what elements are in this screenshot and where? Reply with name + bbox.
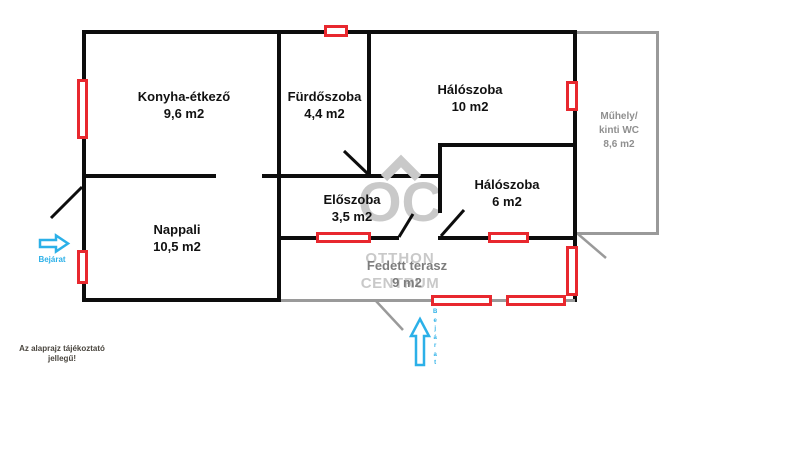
entrance-arrow-left-icon: [40, 236, 68, 252]
room-label-kitchen: Konyha-étkező 9,6 m2: [110, 88, 258, 122]
room-area: 8,6 m2: [589, 138, 649, 152]
room-name: Műhely/: [589, 110, 649, 124]
entrance-label-bottom: B e j á r a t: [433, 308, 437, 368]
room-name: Hálószoba: [425, 81, 515, 98]
disclaimer-line: jellegű!: [18, 354, 106, 364]
room-name: Hálószoba: [462, 176, 552, 193]
room-name: Fürdőszoba: [282, 88, 367, 105]
door-swing-bedroom2: [441, 210, 464, 236]
room-area: 6 m2: [462, 193, 552, 210]
disclaimer-line: Az alaprajz tájékoztató: [18, 344, 106, 354]
room-label-bedroom2: Hálószoba 6 m2: [462, 176, 552, 210]
room-name: Fedett terasz: [358, 257, 456, 274]
room-area: 4,4 m2: [282, 105, 367, 122]
entrance-arrow-bottom-icon: [411, 319, 429, 365]
room-area: 10 m2: [425, 98, 515, 115]
door-swing-bathroom: [344, 151, 368, 174]
door-swing-hall: [399, 214, 413, 237]
room-name: Nappali: [132, 221, 222, 238]
room-area: 9 m2: [358, 274, 456, 291]
floor-plan: OC OTTHON CENTRUM Konyha-étkező 9,6 m2: [0, 0, 800, 454]
entrance-label-left: Bejárat: [34, 255, 70, 264]
overlay-graphics: [0, 0, 800, 454]
room-area: 9,6 m2: [110, 105, 258, 122]
door-swing-workshop: [578, 234, 606, 258]
disclaimer-note: Az alaprajz tájékoztató jellegű!: [18, 344, 106, 363]
room-area: 10,5 m2: [132, 238, 222, 255]
room-name: Előszoba: [308, 191, 396, 208]
room-label-bedroom1: Hálószoba 10 m2: [425, 81, 515, 115]
room-label-hall: Előszoba 3,5 m2: [308, 191, 396, 225]
room-name: kinti WC: [589, 124, 649, 138]
door-swing-terrace: [376, 301, 403, 330]
room-name: Konyha-étkező: [110, 88, 258, 105]
room-label-workshop: Műhely/ kinti WC 8,6 m2: [589, 110, 649, 152]
room-label-terrace: Fedett terasz 9 m2: [358, 257, 456, 291]
room-area: 3,5 m2: [308, 208, 396, 225]
watermark-roof-icon: [384, 161, 418, 178]
room-label-bathroom: Fürdőszoba 4,4 m2: [282, 88, 367, 122]
door-swing-main-entrance: [51, 187, 82, 218]
room-label-livingroom: Nappali 10,5 m2: [132, 221, 222, 255]
